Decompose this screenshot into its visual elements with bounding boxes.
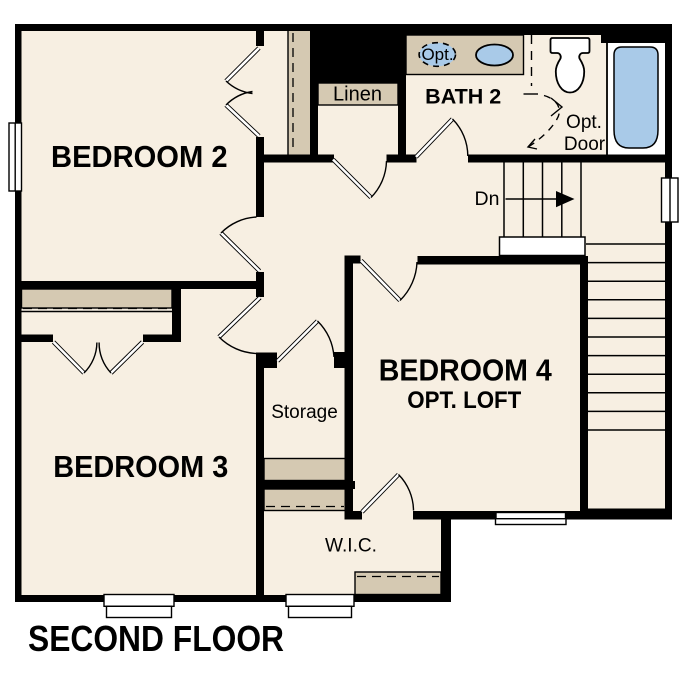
svg-text:BATH 2: BATH 2 — [425, 85, 501, 108]
svg-text:Opt.: Opt. — [566, 112, 602, 133]
svg-text:Linen: Linen — [333, 84, 382, 106]
svg-text:W.I.C.: W.I.C. — [325, 535, 377, 557]
svg-text:SECOND FLOOR: SECOND FLOOR — [28, 618, 284, 659]
svg-text:Dn: Dn — [475, 188, 500, 210]
svg-text:BEDROOM 4: BEDROOM 4 — [379, 354, 552, 388]
svg-text:BEDROOM 2: BEDROOM 2 — [51, 140, 228, 174]
svg-text:Storage: Storage — [271, 402, 338, 423]
svg-text:Door: Door — [564, 134, 606, 155]
svg-text:Opt.: Opt. — [421, 45, 453, 64]
svg-text:OPT. LOFT: OPT. LOFT — [407, 387, 521, 414]
svg-text:BEDROOM 3: BEDROOM 3 — [53, 450, 228, 484]
